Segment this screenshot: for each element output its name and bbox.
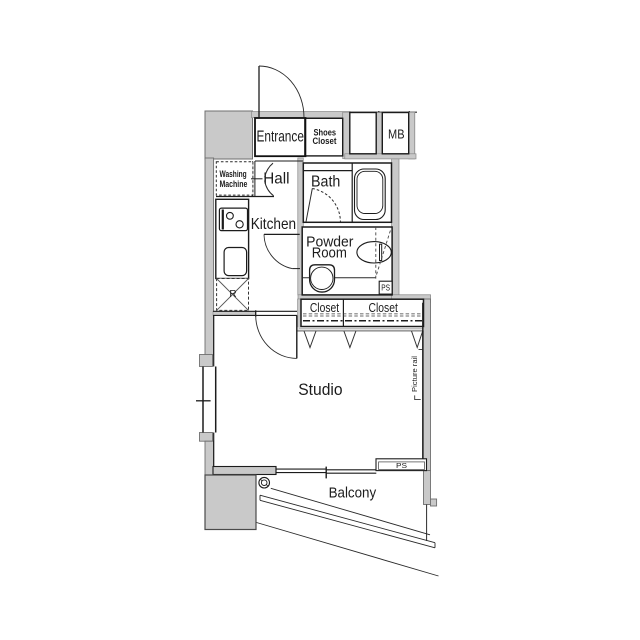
svg-text:Hall: Hall — [263, 171, 289, 188]
svg-text:Kitchen: Kitchen — [251, 216, 296, 233]
svg-text:Closet: Closet — [369, 301, 399, 315]
svg-text:PS: PS — [396, 461, 407, 470]
svg-text:Closet: Closet — [310, 301, 340, 315]
svg-text:Bath: Bath — [311, 174, 340, 191]
svg-text:Room: Room — [312, 244, 347, 261]
svg-text:Entrance: Entrance — [256, 129, 304, 146]
svg-text:Closet: Closet — [313, 136, 337, 146]
svg-text:Machine: Machine — [219, 179, 247, 189]
svg-text:MB: MB — [388, 128, 405, 142]
svg-text:PS: PS — [381, 283, 390, 292]
svg-text:Studio: Studio — [298, 381, 342, 399]
svg-text:Washing: Washing — [220, 169, 247, 179]
svg-text:Picture rail: Picture rail — [410, 356, 419, 392]
svg-text:R: R — [229, 289, 236, 300]
svg-text:Balcony: Balcony — [329, 485, 377, 502]
